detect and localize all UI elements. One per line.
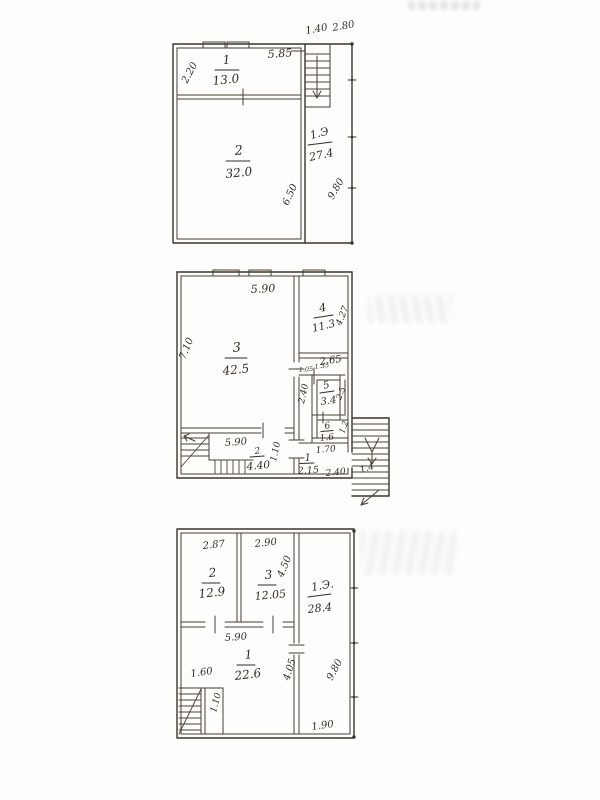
room-number: 2 bbox=[233, 143, 244, 159]
porch-area: 28.4 bbox=[306, 600, 333, 616]
dim-room3-width: 2.90 bbox=[253, 537, 278, 550]
dim-room1-depth: 4.05 bbox=[281, 657, 299, 683]
middle-room-6-label: 6 1.6 bbox=[319, 421, 335, 444]
dim-stair-width: 1.60 bbox=[190, 666, 214, 680]
room-area: 22.6 bbox=[233, 666, 263, 683]
room-area: 11.3 bbox=[311, 318, 337, 335]
room-number: 1 bbox=[304, 452, 311, 464]
dim-side-height: 9.80 bbox=[326, 176, 347, 201]
room-number: 4 bbox=[317, 301, 328, 315]
room-area: 2.15 bbox=[296, 465, 319, 478]
room-number: 1 bbox=[244, 647, 253, 662]
top-room-1-label: 1 13.0 bbox=[212, 52, 240, 87]
room-number: 1 bbox=[222, 52, 231, 66]
porch-area: 27.4 bbox=[307, 146, 335, 164]
dim-side-height: 9.80 bbox=[325, 657, 345, 682]
dim-room1-width: 5.85 bbox=[267, 46, 292, 61]
floor-plan-top: 1 13.0 2 32.0 1.Э 27.4 5.85 2.20 1.40 2.… bbox=[165, 18, 365, 258]
scan-artifact-bottom bbox=[360, 531, 456, 575]
dim-porch-width: 2.80 bbox=[331, 19, 356, 34]
bottom-stair-icon bbox=[179, 689, 201, 734]
middle-room-4-label: 4 11.3 bbox=[311, 301, 337, 335]
dim-hall-width: 1.70 bbox=[315, 444, 336, 456]
room-area: 4.40 bbox=[245, 459, 271, 473]
middle-room-5-label: 5 3.4 bbox=[320, 380, 337, 408]
dim-room3-depth: 7.10 bbox=[178, 336, 197, 361]
bottom-walls bbox=[177, 529, 354, 738]
dim-closet-depth: 1.10 bbox=[209, 692, 224, 714]
middle-dimension-labels: 5.90 7.10 4.27 2.65 1.05 1.35 2.40 2.5 1… bbox=[178, 282, 376, 479]
top-room-2-label: 2 32.0 bbox=[225, 143, 253, 181]
room-area: 13.0 bbox=[212, 71, 240, 88]
dim-outer-stair-width: 1.4 bbox=[359, 462, 376, 476]
dim-room1-depth: 2.20 bbox=[179, 60, 200, 86]
room-number: 3 bbox=[264, 567, 273, 582]
porch-name: 1.Э bbox=[309, 125, 331, 142]
room-area: 1.6 bbox=[319, 433, 335, 444]
room-number: 2 bbox=[207, 565, 217, 580]
dim-room2-width: 2.87 bbox=[201, 539, 226, 552]
dim-room4-depth: 4.27 bbox=[334, 305, 351, 329]
dim-room3-depth: 4.50 bbox=[275, 554, 294, 580]
room-number: 5 bbox=[322, 380, 331, 392]
scan-artifact-top bbox=[408, 1, 480, 10]
room-number: 2 bbox=[253, 446, 261, 457]
room-area: 12.05 bbox=[254, 587, 287, 603]
bottom-room-1-label: 1 22.6 bbox=[233, 647, 263, 683]
room-area: 12.9 bbox=[198, 584, 226, 601]
dim-stair-width: 1.40 bbox=[305, 22, 329, 37]
porch-name: 1.Э. bbox=[310, 577, 334, 594]
dim-room1-width: 5.90 bbox=[224, 631, 248, 644]
middle-room-1-label: 1 2.15 bbox=[296, 452, 319, 477]
floor-plan-middle: 3 42.5 4 11.3 5 3.4 6 1.6 1 2.15 2 4.40 bbox=[165, 262, 400, 512]
dim-stairhall-width: 5.90 bbox=[224, 436, 248, 449]
dim-room2-depth: 6.50 bbox=[281, 182, 301, 207]
top-porch-label: 1.Э 27.4 bbox=[307, 125, 335, 164]
dim-bottom: 2.40 bbox=[324, 467, 346, 479]
middle-room-3-label: 3 42.5 bbox=[221, 340, 250, 378]
top-walls bbox=[173, 44, 352, 243]
dim-door-left: 1.05 bbox=[298, 365, 313, 374]
bottom-porch-label: 1.Э. 28.4 bbox=[306, 577, 335, 616]
top-window-icon bbox=[203, 42, 249, 48]
room-area: 32.0 bbox=[225, 164, 253, 181]
bottom-room-2-label: 2 12.9 bbox=[198, 565, 226, 601]
middle-exit-arrow-icon bbox=[361, 490, 379, 505]
dim-bottom-width: 1.90 bbox=[311, 719, 335, 733]
room-area: 42.5 bbox=[221, 361, 250, 378]
dim-room3-width: 5.90 bbox=[250, 282, 275, 296]
top-stair-direction-arrow-icon bbox=[313, 56, 321, 98]
dim-door-right: 1.35 bbox=[314, 361, 329, 371]
scanned-floorplan-page: 1 13.0 2 32.0 1.Э 27.4 5.85 2.20 1.40 2.… bbox=[0, 0, 600, 800]
dim-stairhall-depth: 1.10 bbox=[269, 441, 283, 463]
middle-exterior-stair-icon bbox=[352, 418, 389, 496]
floor-plan-bottom: 2 12.9 3 12.05 1 22.6 1.Э. 28.4 2.87 2.9… bbox=[165, 518, 370, 753]
middle-window-icons bbox=[213, 270, 325, 276]
room-number: 3 bbox=[232, 340, 242, 356]
